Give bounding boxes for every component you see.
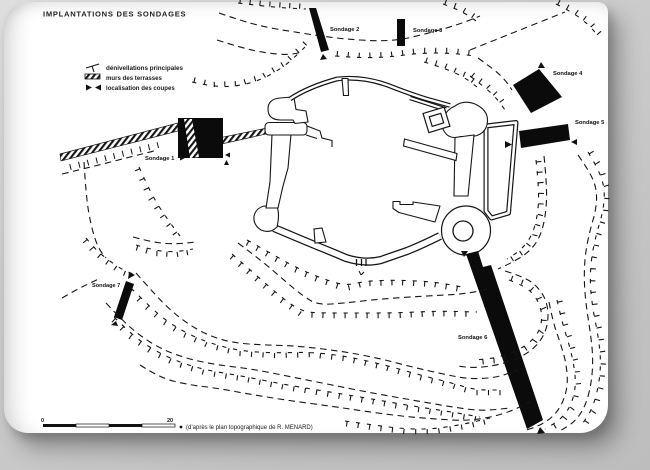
svg-text:Sondage 7: Sondage 7: [92, 283, 120, 289]
svg-text:IMPLANTATIONS DES SONDAGES: IMPLANTATIONS DES SONDAGES: [43, 10, 186, 19]
svg-text:Sondage 3: Sondage 3: [413, 28, 443, 34]
svg-text:Sondage 1: Sondage 1: [145, 156, 175, 162]
svg-text:Sondage 5: Sondage 5: [575, 120, 605, 126]
svg-text:murs des terrasses: murs des terrasses: [106, 75, 163, 82]
svg-text:0: 0: [41, 418, 44, 424]
svg-text:20: 20: [167, 418, 173, 424]
svg-text:(d’après le plan topographique: (d’après le plan topographique de R. MEN…: [186, 425, 313, 431]
svg-text:dénivellations principales: dénivellations principales: [106, 65, 183, 72]
svg-text:Sondage 4: Sondage 4: [553, 71, 583, 77]
svg-text:Sondage 2: Sondage 2: [330, 27, 359, 33]
svg-text:localisation des coupes: localisation des coupes: [106, 85, 175, 92]
svg-text:Sondage 6: Sondage 6: [458, 335, 488, 341]
